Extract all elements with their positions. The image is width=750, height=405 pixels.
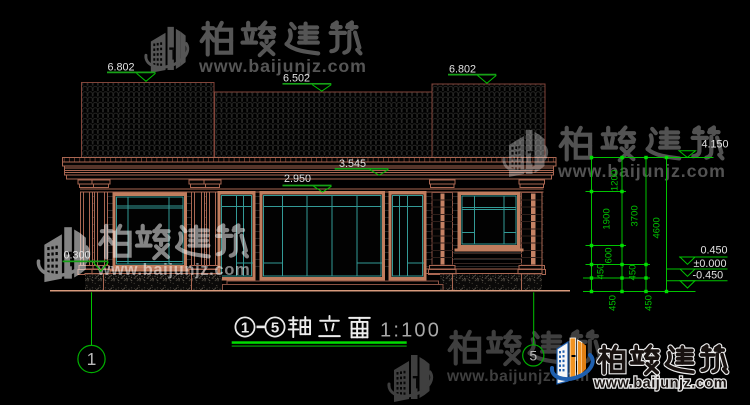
svg-text:6.502: 6.502: [283, 73, 310, 85]
svg-text:-0.450: -0.450: [693, 269, 724, 281]
svg-text:1900: 1900: [602, 208, 613, 229]
svg-text:4.150: 4.150: [702, 139, 729, 151]
svg-text:450: 450: [628, 264, 639, 280]
svg-text:600: 600: [604, 247, 615, 263]
svg-text:5: 5: [271, 320, 279, 337]
svg-text:1: 1: [87, 349, 97, 369]
svg-text:1200: 1200: [610, 170, 621, 191]
svg-text:1: 1: [241, 320, 249, 337]
svg-text:2.950: 2.950: [284, 173, 311, 185]
svg-text:450: 450: [608, 295, 619, 311]
svg-text:www.baijunjz.com: www.baijunjz.com: [593, 376, 727, 392]
svg-text:450: 450: [644, 295, 655, 311]
svg-text:3700: 3700: [630, 205, 641, 226]
svg-text:5: 5: [529, 348, 537, 364]
svg-text:www.baijunjz.com: www.baijunjz.com: [557, 161, 726, 181]
svg-text:6.802: 6.802: [449, 64, 476, 76]
svg-text:1:100: 1:100: [380, 320, 441, 342]
svg-text:4600: 4600: [652, 217, 663, 238]
svg-text:www.baijunjz.com: www.baijunjz.com: [97, 260, 251, 279]
svg-text:450: 450: [596, 263, 607, 279]
svg-text:0.450: 0.450: [701, 244, 728, 256]
svg-text:0.300: 0.300: [64, 250, 91, 262]
svg-text:±0.000: ±0.000: [694, 258, 727, 270]
